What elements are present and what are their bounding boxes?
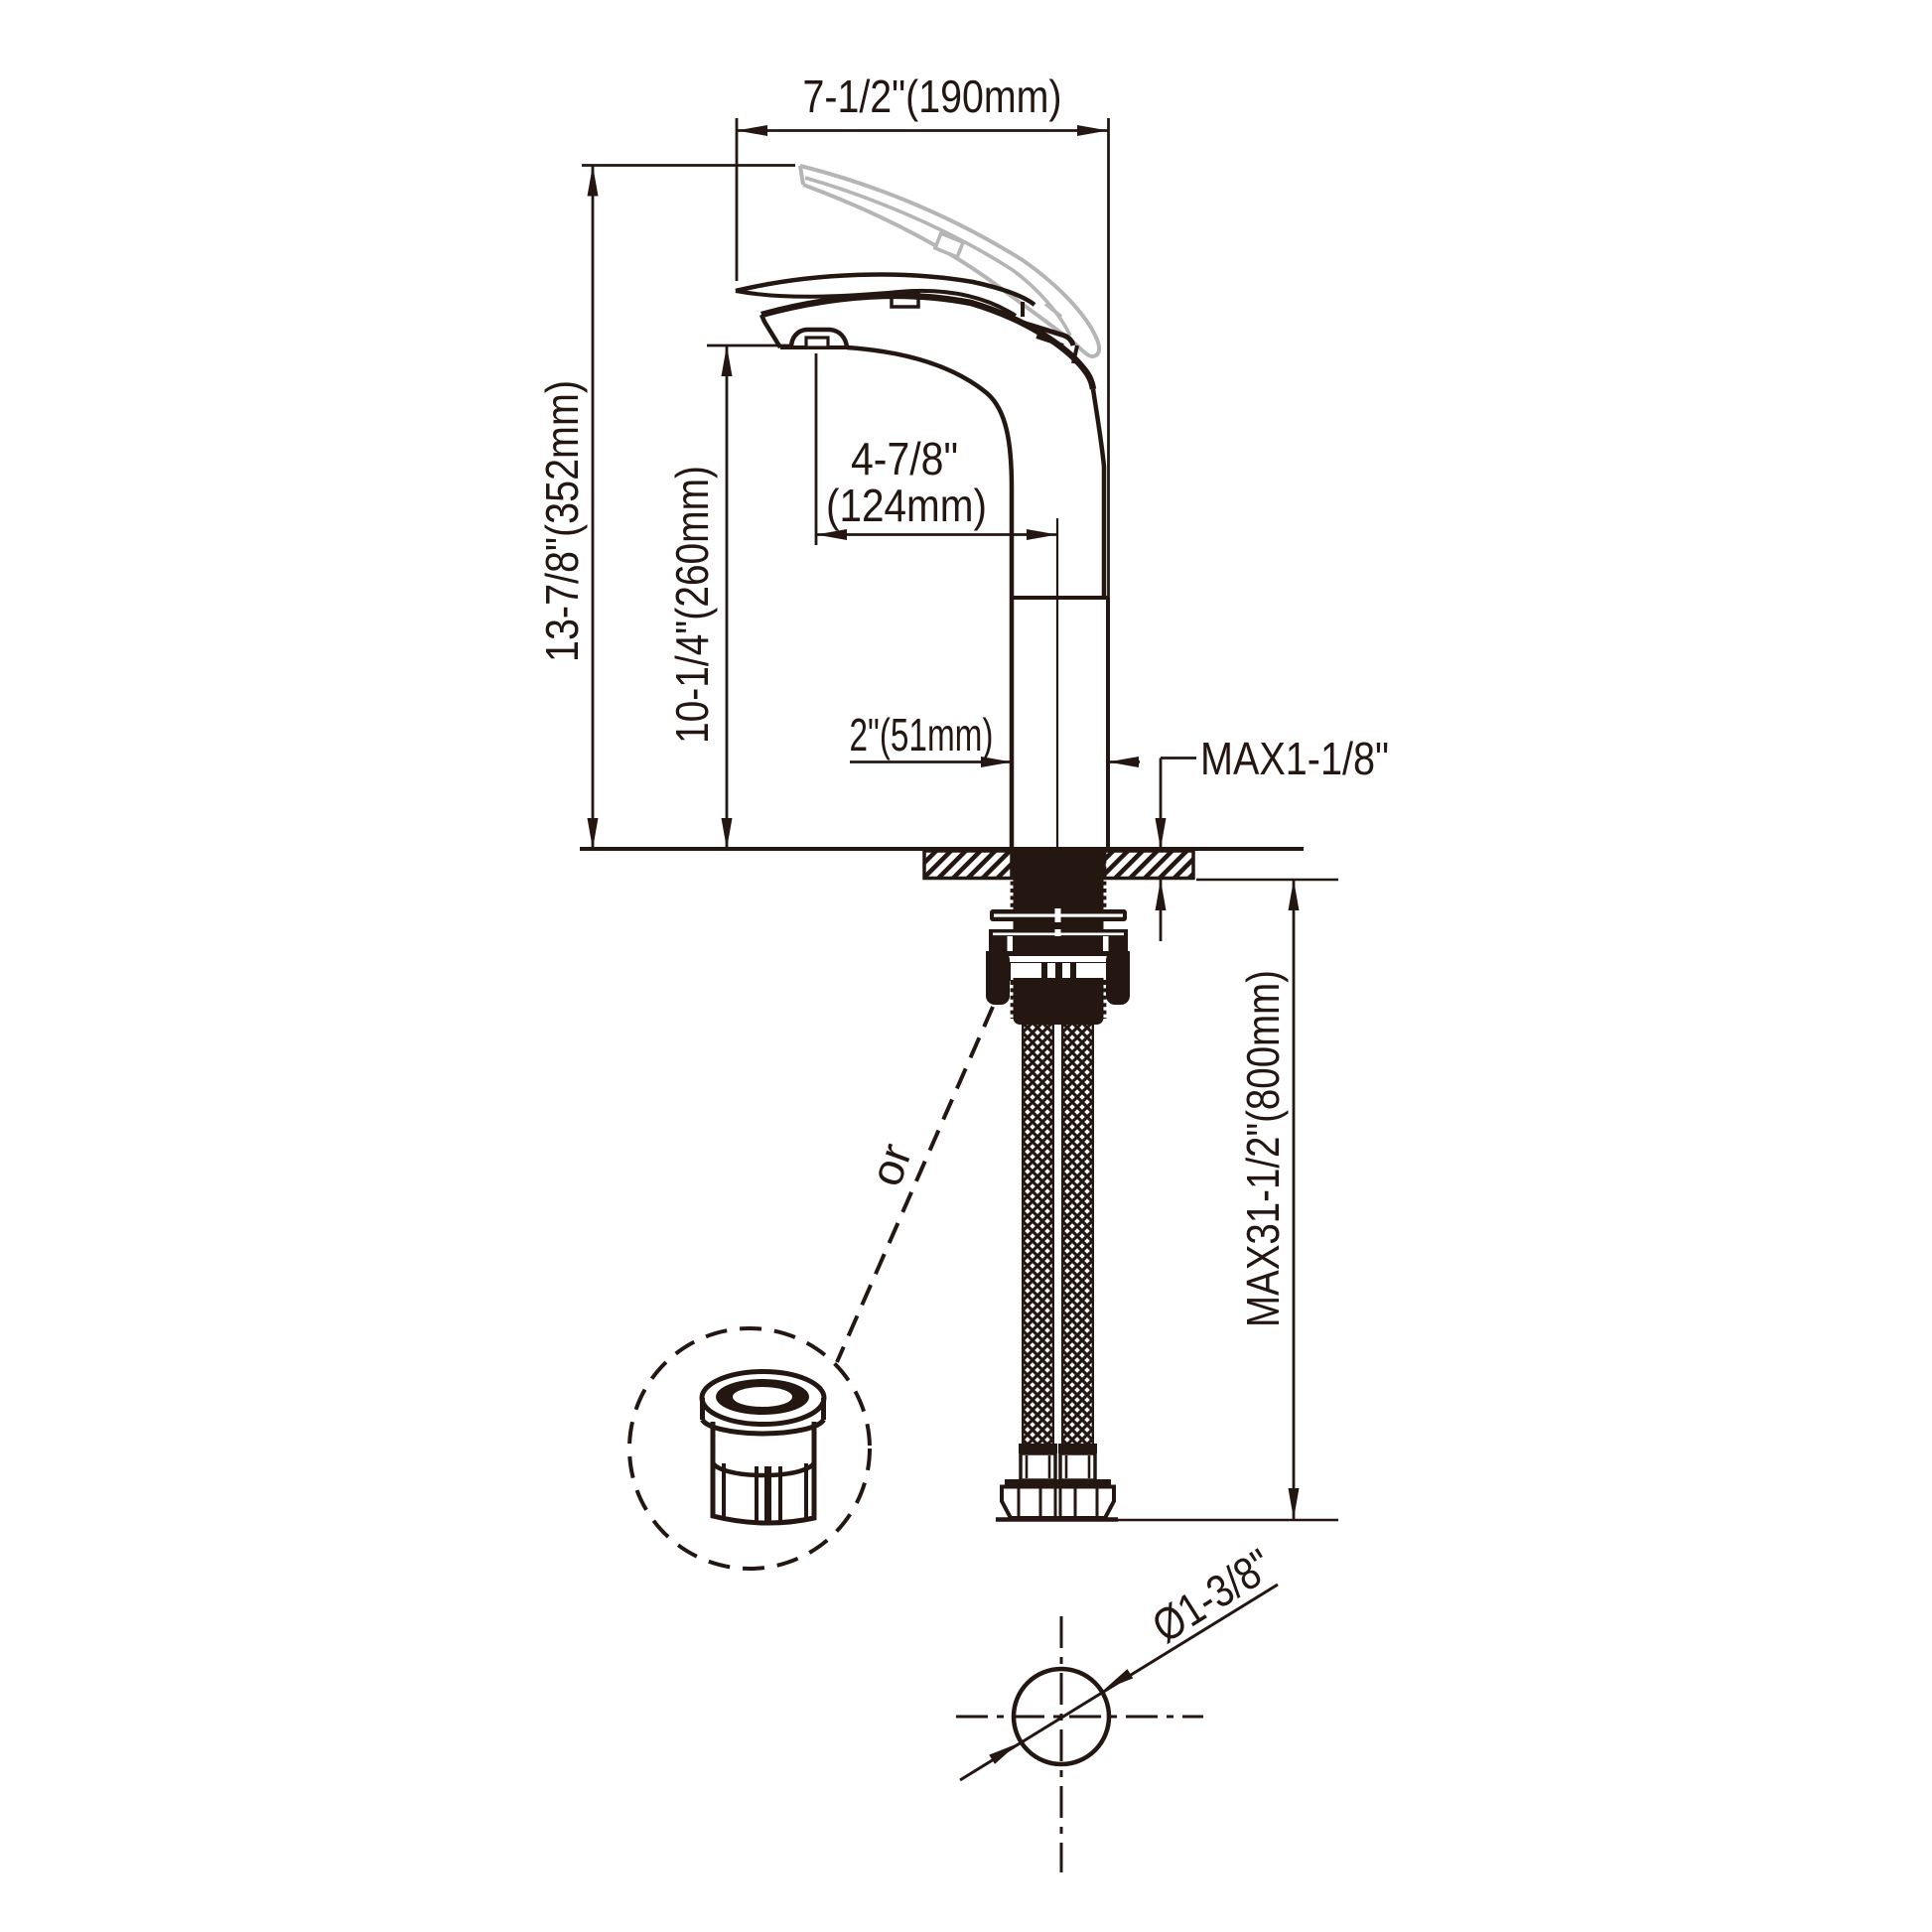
svg-text:13-7/8"(352mm): 13-7/8"(352mm) (536, 380, 588, 662)
svg-text:MAX31-1/2"(800mm): MAX31-1/2"(800mm) (1237, 970, 1289, 1327)
svg-text:4-7/8": 4-7/8" (851, 433, 958, 484)
svg-text:7-1/2"(190mm): 7-1/2"(190mm) (803, 70, 1062, 122)
svg-text:2"(51mm): 2"(51mm) (850, 709, 994, 760)
svg-text:(124mm): (124mm) (826, 480, 987, 531)
svg-text:MAX1-1/8": MAX1-1/8" (1200, 733, 1389, 784)
svg-text:10-1/4"(260mm): 10-1/4"(260mm) (666, 466, 718, 744)
